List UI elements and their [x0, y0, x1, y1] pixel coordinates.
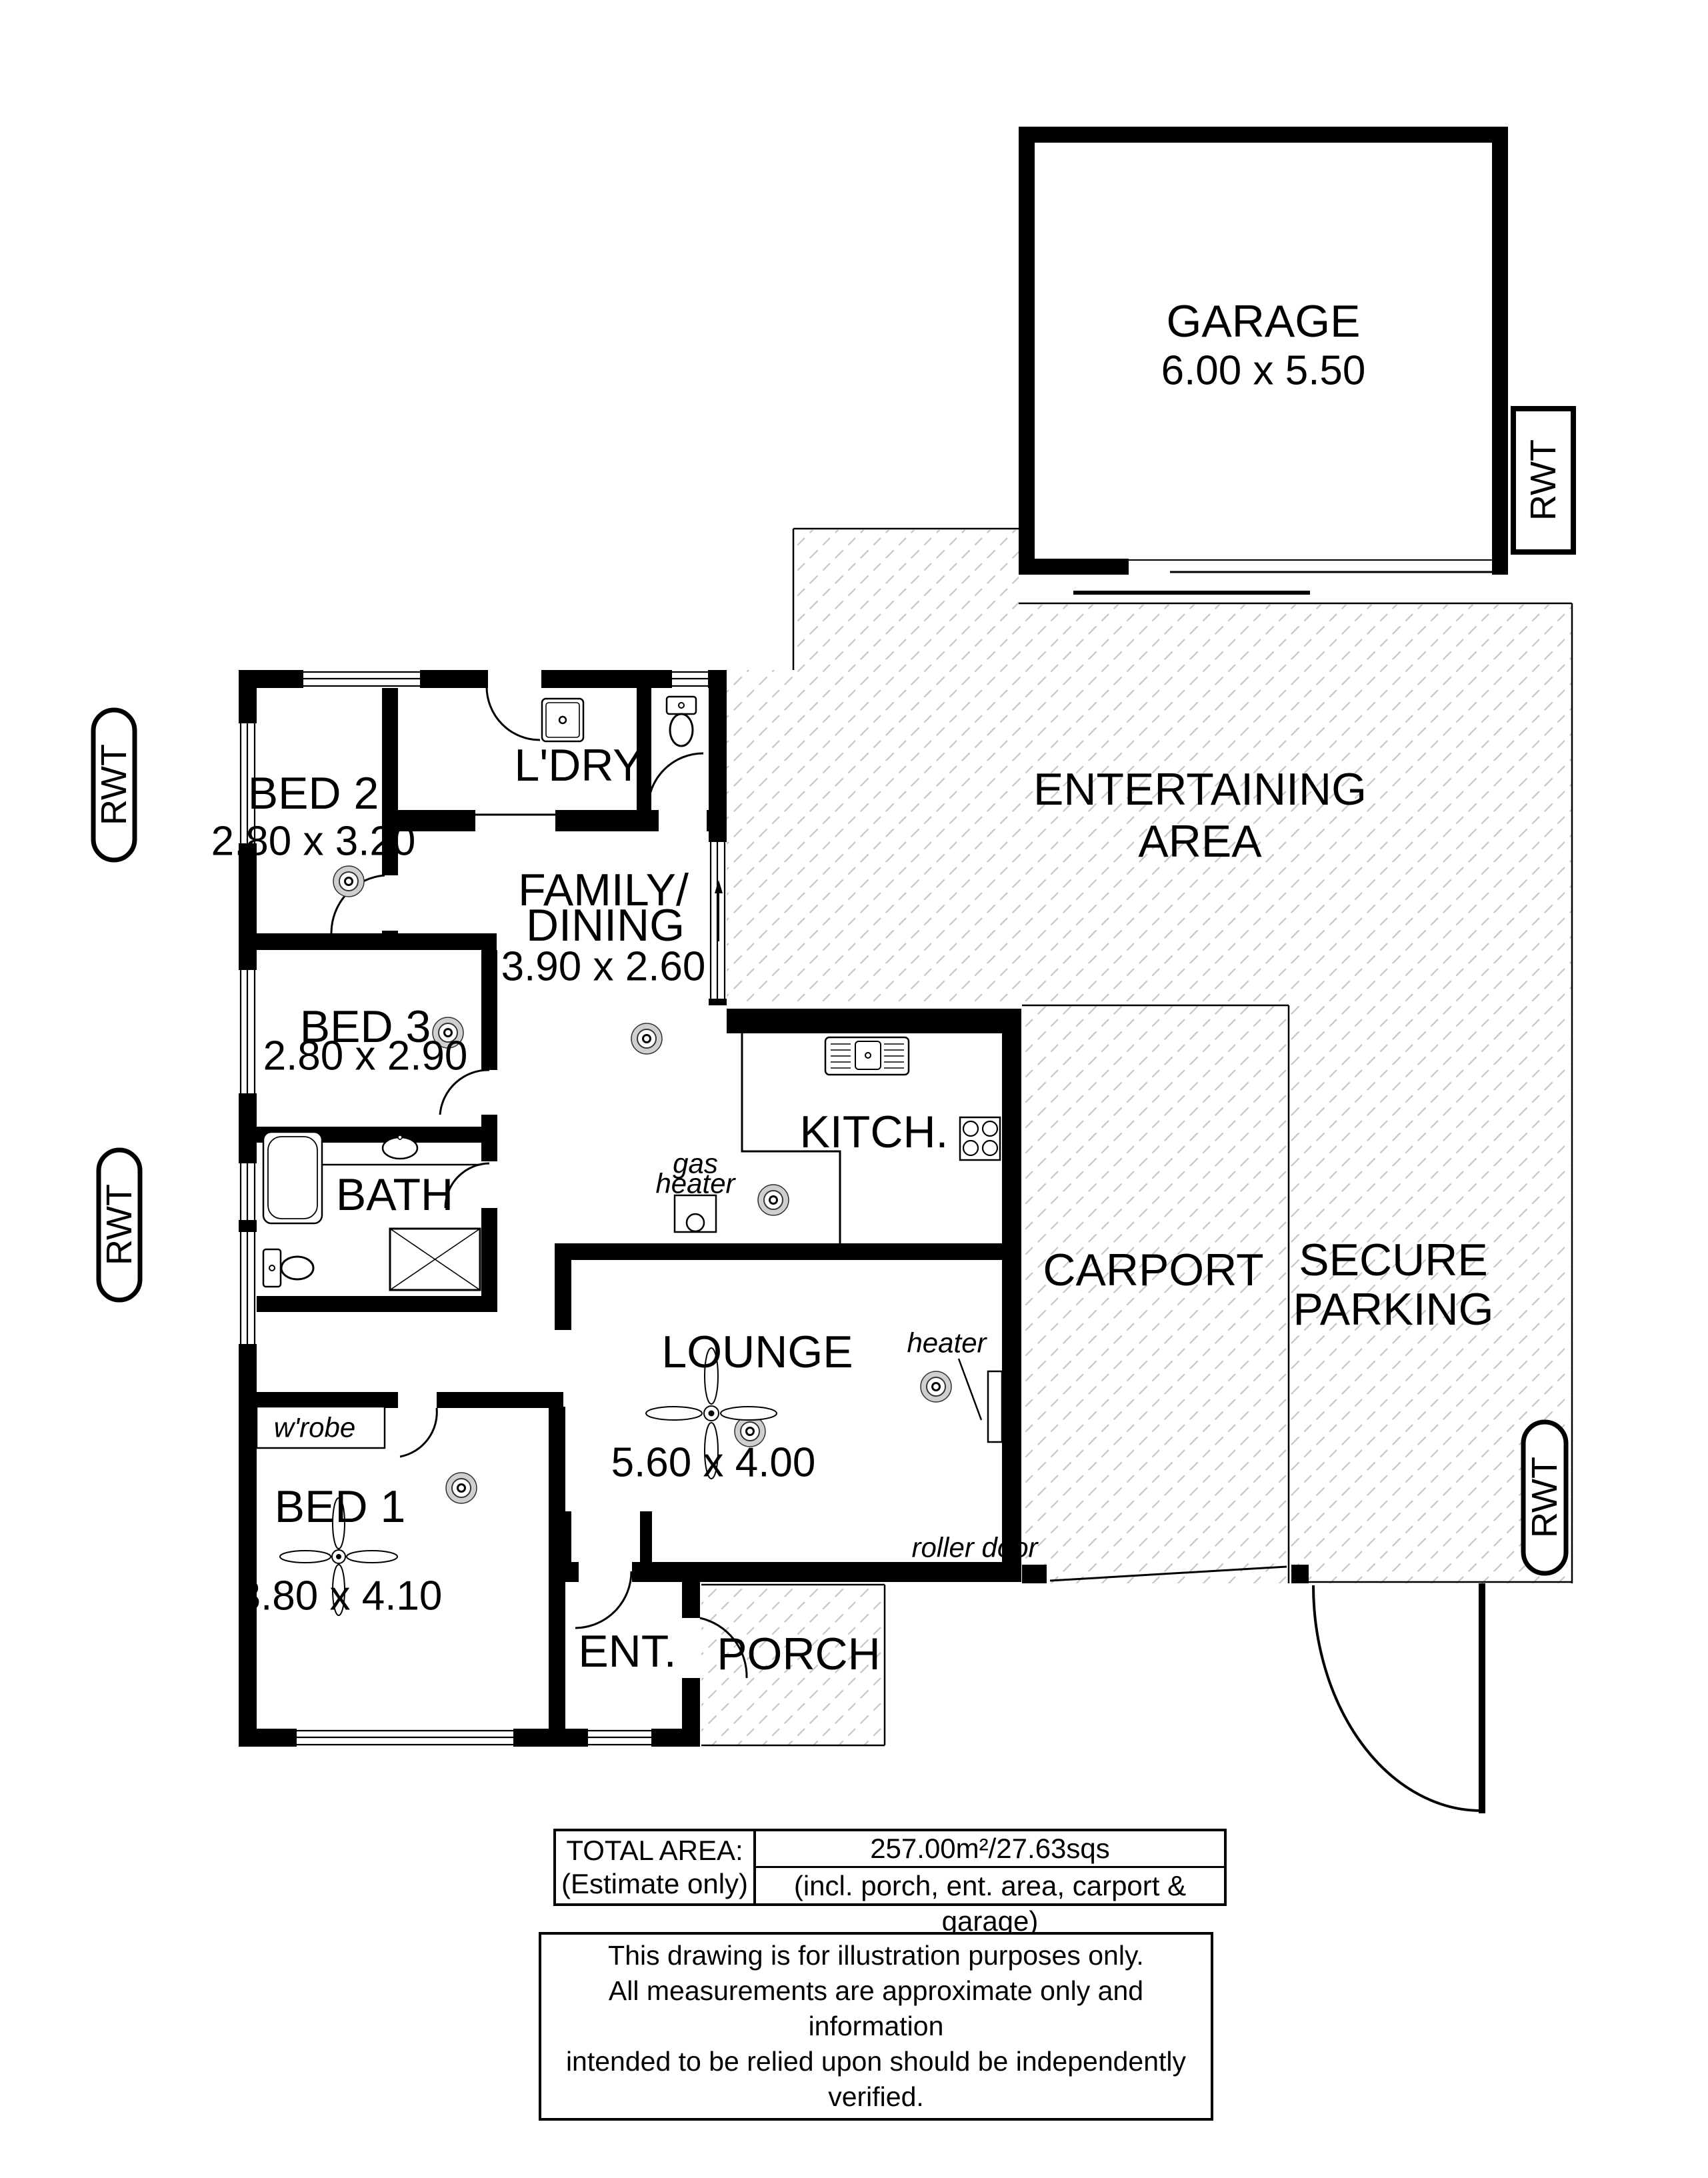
heater-icon: [959, 1359, 1002, 1442]
entertaining-label-2: AREA: [1138, 816, 1262, 867]
bed1-dims: 3.80 x 4.10: [238, 1573, 443, 1619]
rwt-text: RWT: [1525, 1457, 1565, 1538]
rwt-text: RWT: [1523, 439, 1563, 521]
rwt-marker-left-2: RWT: [99, 1150, 140, 1300]
window-bed1-bottom: [297, 1729, 513, 1747]
laundry-door-arc: [487, 687, 540, 740]
total-area-table: TOTAL AREA: (Estimate only) 257.00m²/27.…: [553, 1829, 1227, 1906]
window-bed2-top: [303, 670, 420, 688]
bed1-door-arc: [400, 1408, 437, 1457]
total-area-value: 257.00m²/27.63sqs: [756, 1831, 1224, 1868]
heater-leader-line: [959, 1359, 981, 1420]
bath-label: BATH: [336, 1169, 453, 1220]
family-dims: 3.90 x 2.60: [501, 944, 706, 990]
window-wc-top: [672, 670, 708, 688]
bed2-dims: 2.80 x 3.20: [211, 819, 416, 865]
disclaimer-line-2: All measurements are approximate only an…: [541, 1973, 1211, 2044]
rwt-marker-garage: RWT: [1513, 409, 1573, 552]
laundry-sink-icon: [542, 699, 583, 741]
garage-label: GARAGE: [1167, 296, 1361, 347]
total-area-includes: (incl. porch, ent. area, carport & garag…: [756, 1868, 1224, 1903]
laundry-label: L'DRY: [514, 740, 643, 791]
light-icon-bed2: [333, 866, 364, 897]
window-ent-bottom: [588, 1729, 651, 1747]
window-family-right: [709, 835, 727, 1005]
total-area-value-cell: 257.00m²/27.63sqs (incl. porch, ent. are…: [756, 1831, 1224, 1903]
entertaining-area-hatch-top: [793, 605, 1572, 670]
porch-label: PORCH: [717, 1629, 881, 1679]
kitchen-sink-icon: [825, 1037, 909, 1075]
wc-door-arc: [648, 753, 703, 809]
roller-door-label: roller door: [911, 1532, 1039, 1563]
light-icon-bed1: [446, 1473, 477, 1503]
floor-plan-canvas: RWT RWT RWT RWT GARAGE 6.00 x 5.50 ENTER…: [0, 0, 1708, 2178]
disclaimer-box: This drawing is for illustration purpose…: [539, 1932, 1213, 2121]
bed3-dims: 2.80 x 2.90: [263, 1033, 468, 1079]
rwt-text: RWT: [94, 744, 134, 825]
ent-label: ENT.: [578, 1626, 676, 1677]
secure-parking-label-2: PARKING: [1293, 1284, 1493, 1335]
lounge-dims: 5.60 x 4.00: [611, 1440, 816, 1486]
window-bed3-left: [239, 970, 257, 1093]
garage-dims: 6.00 x 5.50: [1161, 348, 1366, 394]
window-bath-left-2: [239, 1232, 257, 1344]
total-area-header-cell: TOTAL AREA: (Estimate only): [556, 1831, 756, 1903]
wrobe-label-text: w'robe: [274, 1412, 355, 1443]
bathtub-icon: [263, 1132, 322, 1223]
light-icon-family-1: [631, 1023, 662, 1054]
bed2-label: BED 2: [248, 768, 379, 819]
total-area-label: TOTAL AREA:: [566, 1834, 743, 1867]
entertaining-label-1: ENTERTAINING: [1033, 764, 1367, 815]
kitchen-label: KITCH.: [800, 1107, 949, 1157]
window-bath-left-1: [239, 1163, 257, 1220]
light-icon-lounge-2: [921, 1371, 951, 1402]
gas-heater-icon: [675, 1195, 716, 1232]
bed1-label: BED 1: [275, 1481, 406, 1532]
estimate-only-label: (Estimate only): [561, 1867, 748, 1901]
toilet-icon-bath: [263, 1249, 313, 1287]
secure-parking-label-1: SECURE: [1299, 1235, 1487, 1285]
carport-label: CARPORT: [1043, 1245, 1263, 1295]
rwt-marker-left-1: RWT: [93, 710, 135, 860]
light-icon-family-2: [758, 1185, 789, 1215]
toilet-icon-wc: [667, 697, 696, 746]
entertaining-area-hatch-notch: [793, 530, 1019, 605]
rwt-text: RWT: [99, 1184, 139, 1265]
rwt-marker-parking: RWT: [1523, 1422, 1566, 1573]
shower-icon: [390, 1229, 480, 1290]
disclaimer-line-3: intended to be relied upon should be ind…: [541, 2044, 1211, 2115]
heater-label: heater: [907, 1327, 987, 1359]
gas-heater-label-2: heater: [655, 1168, 736, 1199]
disclaimer-line-1: This drawing is for illustration purpose…: [541, 1938, 1211, 1973]
garage-door: [1073, 560, 1492, 593]
driveway-gate: [1313, 1583, 1485, 1813]
cooktop-icon: [960, 1117, 1000, 1160]
lounge-label: LOUNGE: [661, 1327, 853, 1377]
